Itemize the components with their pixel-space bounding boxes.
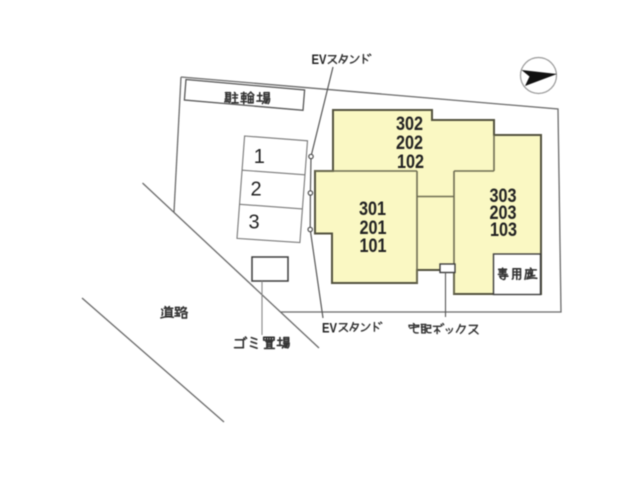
- svg-text:301: 301: [359, 199, 386, 220]
- svg-text:202: 202: [396, 133, 423, 154]
- svg-text:103: 103: [490, 220, 517, 241]
- svg-text:EV: EV: [312, 51, 328, 67]
- svg-text:101: 101: [360, 236, 387, 257]
- svg-text:102: 102: [397, 152, 424, 173]
- svg-text:EV: EV: [322, 320, 338, 336]
- svg-text:302: 302: [396, 114, 423, 135]
- svg-text:1: 1: [254, 146, 265, 168]
- svg-text:2: 2: [250, 178, 261, 200]
- svg-text:3: 3: [248, 211, 259, 233]
